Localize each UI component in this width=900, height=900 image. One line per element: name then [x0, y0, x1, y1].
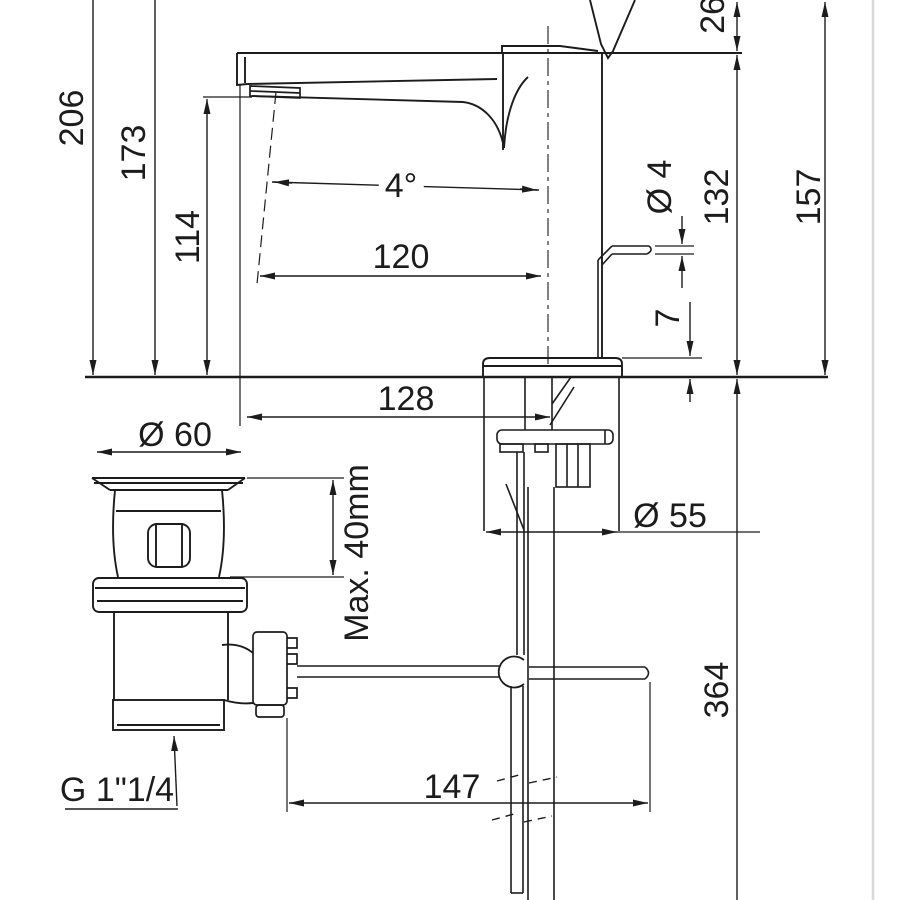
dim-tip-to-axis-label: 128 [378, 382, 435, 416]
dim-pipe-length-label: 364 [700, 662, 734, 719]
dim-spout-to-deck-label: 132 [700, 169, 734, 226]
ball-joint [499, 656, 524, 687]
dim-base-thickness-label: 7 [651, 309, 685, 328]
dim-outlet-height-label: 114 [171, 210, 205, 264]
dim-drain-thread-label: G 1"1/4 [60, 773, 174, 807]
dim-overall-height-label: 206 [55, 90, 89, 147]
dim-max-deck-label: Max. 40mm [340, 464, 374, 642]
horizontal-rod [297, 666, 649, 679]
drain-knurled-nut [253, 632, 297, 717]
dim-spout-reach-label: 120 [373, 240, 430, 274]
dim-rod-diameter-label: Ø 4 [643, 160, 677, 215]
supply-pipe [511, 452, 554, 900]
drain-body-outline [92, 478, 253, 730]
dim-spout-angle-label: 4° [379, 169, 424, 203]
dim-rod-length-label: 147 [424, 770, 481, 804]
pipe-break-marks [492, 775, 557, 822]
faucet-handle-outline [590, 0, 635, 58]
dim-base-diameter-label: Ø 55 [633, 499, 707, 533]
pull-rod [598, 246, 651, 358]
dim-drain-flange-label: Ø 60 [138, 418, 212, 452]
dim-body-height-label: 157 [792, 169, 826, 226]
dim-spout-tip-height-label: 173 [117, 125, 151, 182]
dim-handle-top-label: 26 [696, 0, 730, 34]
technical-drawing-page: 206 173 114 26 157 132 Ø 4 7 4° 120 128 … [0, 0, 900, 900]
mounting-hardware [484, 377, 619, 531]
